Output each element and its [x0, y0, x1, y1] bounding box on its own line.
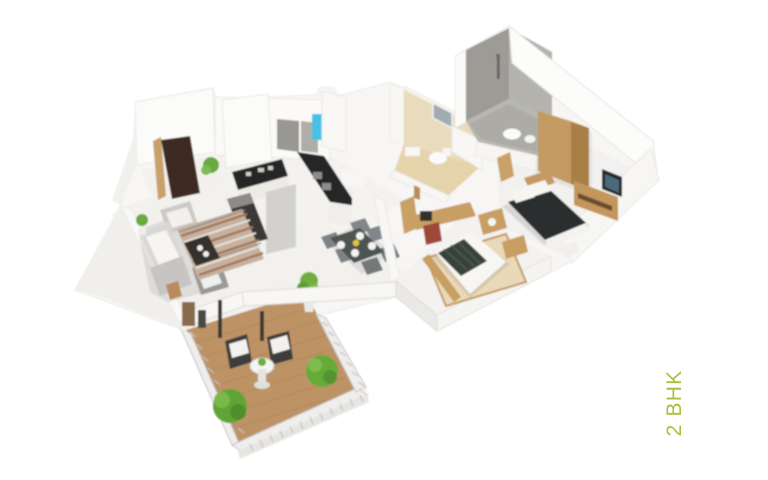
svg-text:2 BHK: 2 BHK [663, 370, 686, 437]
